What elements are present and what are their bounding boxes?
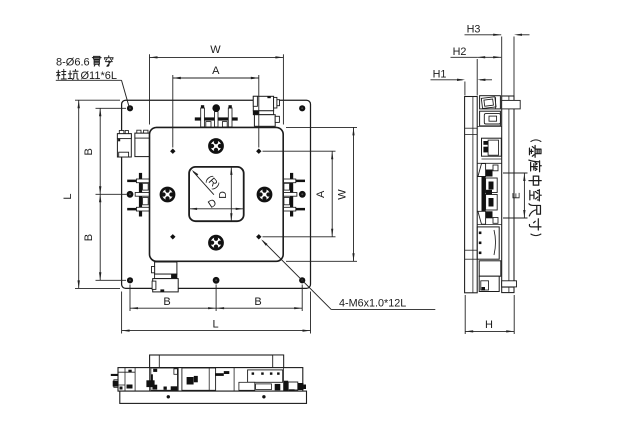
svg-text:E: E [512,192,523,199]
svg-text:D: D [217,191,229,199]
svg-text:A: A [212,65,220,77]
svg-text:B: B [254,296,261,308]
svg-text:B: B [83,234,95,241]
svg-text:B: B [83,148,95,155]
svg-text:A: A [315,190,327,198]
svg-text:W: W [210,44,221,56]
svg-text:B: B [163,296,170,308]
svg-text:L: L [212,319,218,331]
svg-text:H: H [485,319,493,331]
svg-text:4-M6x1.0*12L: 4-M6x1.0*12L [339,298,406,310]
svg-text:W: W [336,189,348,200]
svg-text:H2: H2 [453,46,467,58]
svg-text:H1: H1 [433,69,447,81]
svg-text:L: L [62,193,74,199]
svg-text:H3: H3 [467,24,481,36]
